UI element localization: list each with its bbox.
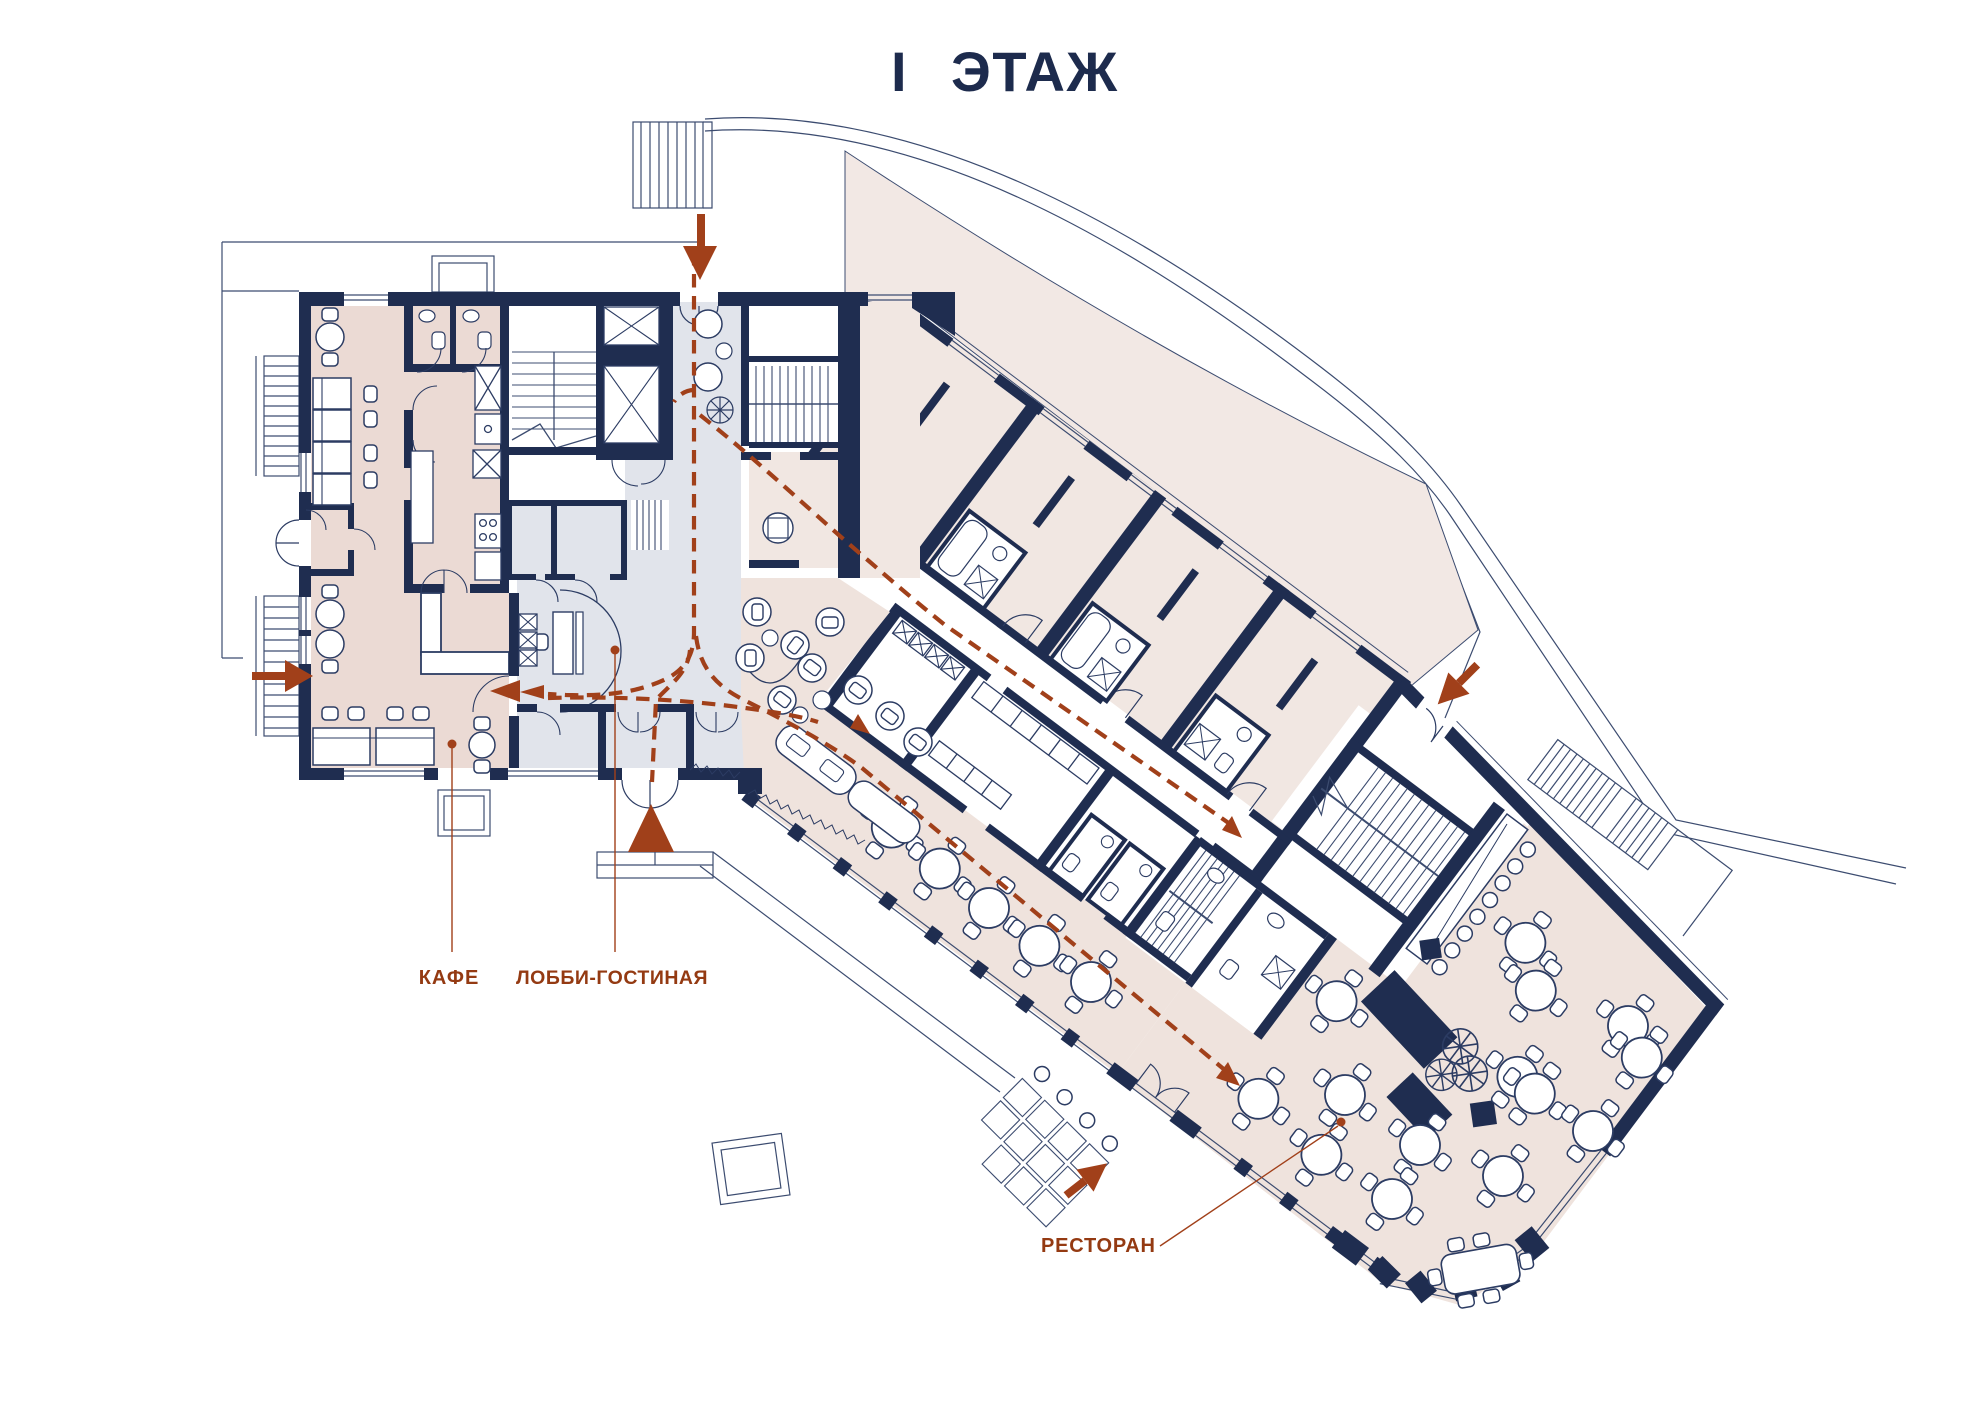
svg-text:КАФЕ: КАФЕ [419, 967, 480, 989]
svg-text:РЕСТОРАН: РЕСТОРАН [1041, 1235, 1156, 1257]
svg-text:I: I [891, 40, 915, 103]
svg-text:ЭТАЖ: ЭТАЖ [951, 40, 1119, 103]
svg-text:ЛОББИ-ГОСТИНАЯ: ЛОББИ-ГОСТИНАЯ [516, 967, 708, 989]
